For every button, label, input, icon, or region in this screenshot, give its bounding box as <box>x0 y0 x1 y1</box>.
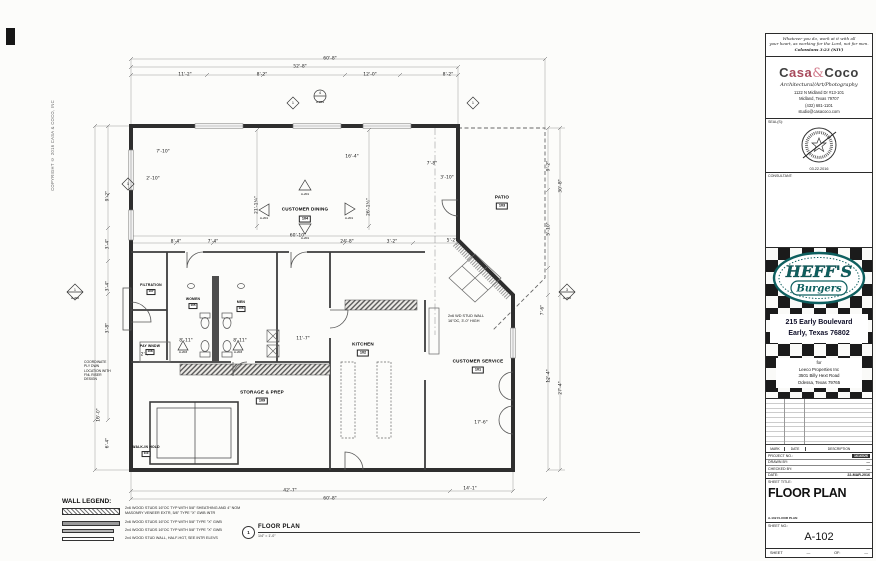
client-name: Leeco Properties Inc <box>776 367 862 374</box>
sheet-number-label: SHEET NO.: <box>768 524 788 528</box>
dimension-label: 30'-8" <box>559 179 564 193</box>
room-number-customer-service: 101 <box>472 367 484 374</box>
revision-rows <box>766 399 872 445</box>
dimension-label: 8'-4" <box>171 240 182 245</box>
dimension-label: 8'-11" <box>179 339 193 344</box>
drawing-number-bubble: 1 <box>242 526 255 539</box>
revision-header-mark: MARK <box>766 447 785 451</box>
dimension-label: 8'-11" <box>233 339 247 344</box>
window-tag: 1 <box>292 101 294 105</box>
seal-box: SEAL(S): 03.22.2016 <box>766 119 872 173</box>
of-count-dash: — <box>864 551 868 555</box>
walk-in-cooler <box>150 402 238 464</box>
project-number-value: 1616026 <box>852 454 870 458</box>
revision-table-header: MARK DATE DESCRIPTION <box>766 444 872 452</box>
project-address-line: Early, Texas 76802 <box>770 329 868 340</box>
legend-swatch-half-wall <box>62 537 114 541</box>
checked-by-label: CHECKED BY: <box>768 467 792 471</box>
elevation-marker-number: 3 <box>566 288 568 292</box>
dimension-label: 5'-10" <box>547 222 552 236</box>
elevation-marker-ref: A-201 <box>301 192 309 196</box>
revision-table: MARK DATE DESCRIPTION <box>766 399 872 453</box>
legend-item: 2x4 WOOD STUD WALL, HALF-HGT, SEE INTR E… <box>125 536 218 541</box>
drawing-title: FLOOR PLAN <box>258 524 300 530</box>
project-info: PROJECT NO.: 1616026 DRAWN BY: — CHECKED… <box>766 453 872 479</box>
room-number-pay-window: 108 <box>145 349 154 355</box>
kitchen-equipment <box>140 254 501 438</box>
dimension-label: 5'-2" <box>447 239 458 244</box>
drawn-by-label: DRAWN BY: <box>768 460 788 464</box>
patio-outline <box>458 128 545 331</box>
date-row: DATE: 22-MAR-2016 <box>766 473 872 479</box>
sheet-count-dash: — <box>806 551 810 555</box>
date-label: DATE: <box>768 473 778 477</box>
project-address-line: 215 Early Boulevard <box>770 318 868 329</box>
firm-logo-text: Coco <box>824 65 859 80</box>
legend-swatch-2x6-wall <box>62 521 120 526</box>
dimension-label: 11'-2" <box>178 73 192 78</box>
chamfer-wall-hatch <box>455 244 509 298</box>
client-logo-box: HEFF'S Burgers 215 Early Boulevard Early… <box>766 248 872 399</box>
elevation-marker-ref: A-203 <box>234 350 242 354</box>
elevation-marker-ref: A-202 <box>71 296 79 300</box>
verse-line: your heart, as working for the Lord, not… <box>766 41 872 46</box>
legend-item: 2x6 WOOD STUDS 16"OC TYP WITH 5/8" SHEAT… <box>125 506 240 515</box>
room-label-storage-prep: STORAGE & PREP <box>240 390 284 395</box>
legend-item: 2x6 WOOD STUDS 16"OC TYP WITH 5/8" TYPE … <box>125 520 222 525</box>
section-marker-number: 4 <box>319 91 321 95</box>
client-address-line: Odessa, Texas 79765 <box>776 380 862 387</box>
client-info: for Leeco Properties Inc 3501 Billy Hext… <box>776 358 862 388</box>
sheet-number-box: SHEET NO.: A-102 <box>766 523 872 549</box>
dimension-label: 16'-0" <box>97 408 102 422</box>
dimension-label: 12'-4" <box>547 369 552 383</box>
note-half-wall: 2x6 WD STUD WALL 16"OC, 3'-0" HIGH <box>448 314 484 323</box>
sheet-of-row: SHEET — OF: — <box>766 549 872 557</box>
dimension-label: 17'-6" <box>474 421 488 426</box>
dimension-label: 21'-1¼" <box>255 196 260 214</box>
floor-plan-drawing <box>45 50 585 520</box>
window-tag: 1 <box>127 182 129 186</box>
sheet-file-ref: A-102 FLOOR PLAN <box>768 516 797 520</box>
room-number-men: 106 <box>236 306 245 312</box>
dimension-label: 7'-4" <box>208 240 219 245</box>
room-label-filtration: FILTRATION <box>140 283 162 287</box>
window-tag: 1 <box>472 101 474 105</box>
dimension-label: 3'-2" <box>387 240 398 245</box>
dimension-label: 7'-6" <box>541 305 546 316</box>
room-number-kitchen: 102 <box>357 350 369 357</box>
legend-item: 2x4 WOOD STUDS 16"OC TYP WITH 5/8" TYPE … <box>125 528 222 533</box>
elevation-marker-number: 1 <box>74 288 76 292</box>
room-label-women: WOMEN <box>186 297 200 301</box>
legend-swatch-masonry-wall <box>62 508 120 515</box>
sheet-title-label: SHEET TITLE: <box>768 480 792 484</box>
sheet-number: A-102 <box>766 531 872 543</box>
dimension-label: 12'-0" <box>363 73 377 78</box>
room-label-kitchen: KITCHEN <box>352 342 374 347</box>
drawing-title-rule <box>258 532 640 533</box>
svg-text:HEFF'S: HEFF'S <box>785 262 852 281</box>
sheet-word: SHEET <box>770 551 783 555</box>
room-number-walk-in-hold: 110 <box>142 451 151 457</box>
dimension-label: 3'-4" <box>106 239 111 250</box>
drawing-sheet: COPYRIGHT © 2016 CASA & COCO, INC <box>0 0 876 561</box>
elevation-marker-ref: A-201 <box>260 216 268 220</box>
room-label-men: MEN <box>237 300 245 304</box>
dimension-label: 60'-8" <box>323 57 337 62</box>
dimension-label: 42'-7" <box>283 489 297 494</box>
svg-text:Burgers: Burgers <box>795 284 842 295</box>
room-number-storage-prep: 109 <box>256 398 268 405</box>
firm-email: studio@casacoco.com <box>766 109 872 115</box>
elevation-marker-glyphs <box>67 90 575 350</box>
seal-label: SEAL(S): <box>768 120 783 124</box>
room-number-patio: 103 <box>496 203 508 210</box>
client-address-line: 3501 Billy Hext Road <box>776 373 862 380</box>
drawn-by-value: — <box>866 460 870 464</box>
room-label-customer-service: CUSTOMER SERVICE <box>453 359 504 364</box>
elevation-marker-ref: A-202 <box>563 296 571 300</box>
note-riser: COORDINATE PLY DWN LOCATION WITH FNL RIS… <box>84 360 111 381</box>
dimension-label: 16'-4" <box>345 155 359 160</box>
dimension-label: 27'-4" <box>559 381 564 395</box>
client-for: for <box>776 360 862 367</box>
dimension-label: 52'-8" <box>293 65 307 70</box>
consultant-label: CONSULTANT: <box>768 174 792 178</box>
of-word: OF: <box>834 551 840 555</box>
sheet-title: FLOOR PLAN <box>768 486 846 500</box>
dimension-label: 60'-8" <box>323 497 337 502</box>
dimension-label: 7'-10" <box>156 150 170 155</box>
dimension-label: 3'-10" <box>440 176 454 181</box>
interior-walls <box>131 252 425 470</box>
dimension-label: 9'-2" <box>106 191 111 202</box>
dimension-label: 26'-1½" <box>367 198 372 216</box>
dimension-label: 2'-10" <box>146 177 160 182</box>
revision-header-date: DATE <box>785 447 806 451</box>
dimension-label: 8'-2" <box>257 73 268 78</box>
room-number-filtration: 107 <box>146 289 155 295</box>
heffs-burgers-logo: HEFF'S Burgers <box>771 251 867 311</box>
firm-logo-text: C <box>779 65 789 80</box>
room-label-walk-in-hold: WALK-IN HOLD <box>132 445 159 449</box>
room-number-customer-dining: 104 <box>299 216 311 223</box>
consultant-box: CONSULTANT: <box>766 173 872 248</box>
legend-swatch-2x4-wall <box>62 529 114 533</box>
room-label-patio: PATIO <box>495 195 509 200</box>
date-value: 22-MAR-2016 <box>847 473 870 477</box>
firm-logo-ampersand: & <box>812 66 824 81</box>
room-number-women: 105 <box>188 303 197 309</box>
checked-by-value: — <box>866 467 870 471</box>
dimension-label: 8'-2" <box>443 73 454 78</box>
firm-logo-text: asa <box>789 65 812 80</box>
plumbing-wall <box>212 276 219 362</box>
drawing-scale: 1/4" = 1'-0" <box>258 534 276 538</box>
elevation-marker-ref: A-201 <box>345 216 353 220</box>
elevation-marker-ref: A-203 <box>179 350 187 354</box>
room-label-pay-window: PAY WNDW <box>140 344 160 348</box>
firm-tagline: Architectural/Art/Photography <box>766 82 872 88</box>
project-address: 215 Early Boulevard Early, Texas 76802 <box>770 314 868 343</box>
wall-legend-title: WALL LEGEND: <box>62 498 111 505</box>
sheet-title-box: SHEET TITLE: FLOOR PLAN A-102 FLOOR PLAN <box>766 479 872 523</box>
verse-reference: Colossians 3:23 (NIV) <box>766 47 872 52</box>
scan-corner-mark <box>6 28 15 45</box>
dimension-label: 11'-7" <box>296 337 310 342</box>
dimension-label: 3'-8" <box>106 323 111 334</box>
firm-box: Casa&Coco Architectural/Art/Photography … <box>766 57 872 119</box>
dimension-label: 14'-1" <box>463 487 477 492</box>
verse-box: Whatever you do, work at it with all you… <box>766 34 872 57</box>
dimension-label: 3'-4" <box>106 281 111 292</box>
project-number-label: PROJECT NO.: <box>768 454 793 458</box>
dimension-label: 6'-4" <box>106 438 111 449</box>
section-marker-ref: A-201 <box>316 100 324 104</box>
architect-seal-icon <box>798 125 840 165</box>
dimension-label: 24'-8" <box>340 240 354 245</box>
revision-header-description: DESCRIPTION <box>806 447 872 451</box>
dimension-label: 9'-2" <box>547 161 552 172</box>
dimension-label: 7'-8" <box>427 162 438 167</box>
seal-date: 03.22.2016 <box>766 167 872 171</box>
room-label-customer-dining: CUSTOMER DINING <box>282 207 329 212</box>
elevation-marker-ref: A-201 <box>301 236 309 240</box>
firm-logo: Casa&Coco <box>766 66 872 80</box>
title-block: Whatever you do, work at it with all you… <box>765 33 873 558</box>
